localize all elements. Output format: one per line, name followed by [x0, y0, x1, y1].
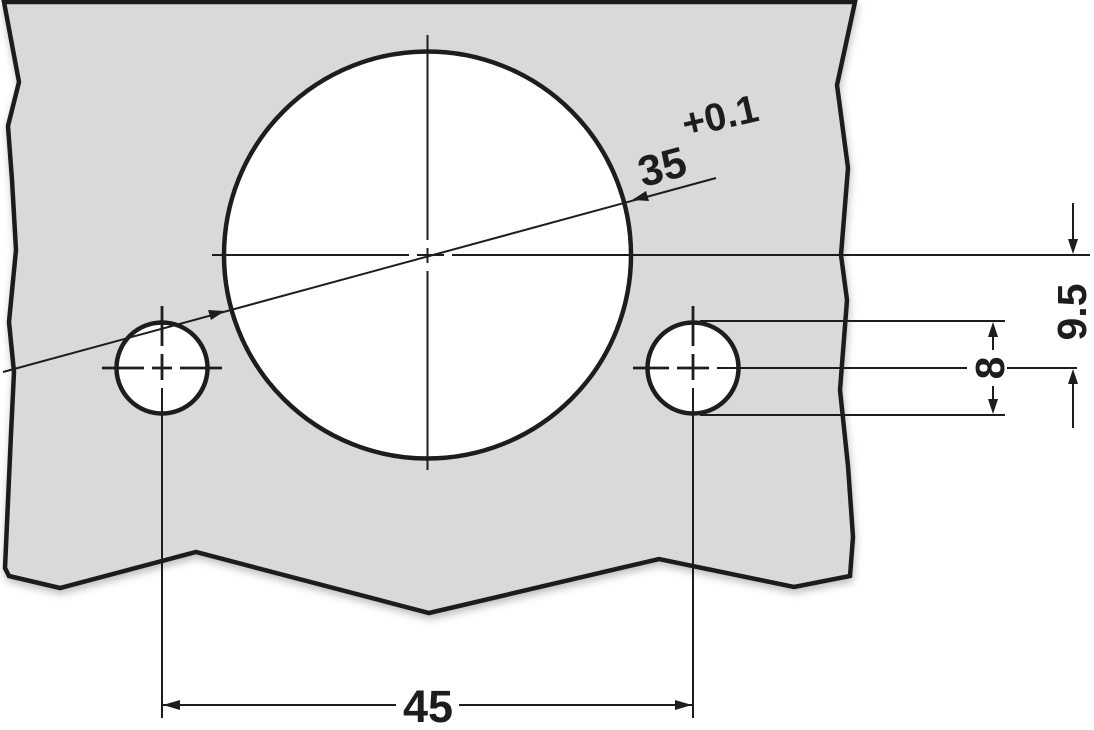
hole-spacing-label: 45	[403, 681, 453, 730]
offset-arrowhead-bottom	[1068, 369, 1078, 384]
center-offset-dimension: 9.5	[1049, 203, 1094, 428]
screw-diameter-arrowhead-bottom	[988, 399, 998, 414]
hole-spacing-dimension: 45	[163, 681, 692, 730]
spacing-arrowhead-right	[675, 700, 692, 710]
spacing-arrowhead-left	[163, 700, 180, 710]
screw-diameter-arrowhead-top	[988, 322, 998, 337]
drilling-pattern-diagram: 35 +0.1 9.5 8 45	[0, 0, 1094, 730]
screw-hole-diameter-label: 8	[967, 357, 1013, 380]
center-offset-label: 9.5	[1049, 284, 1094, 341]
technical-drawing-canvas: 35 +0.1 9.5 8 45	[0, 0, 1094, 730]
screw-hole-diameter-dimension: 8	[967, 322, 1013, 414]
offset-arrowhead-top	[1068, 239, 1078, 254]
